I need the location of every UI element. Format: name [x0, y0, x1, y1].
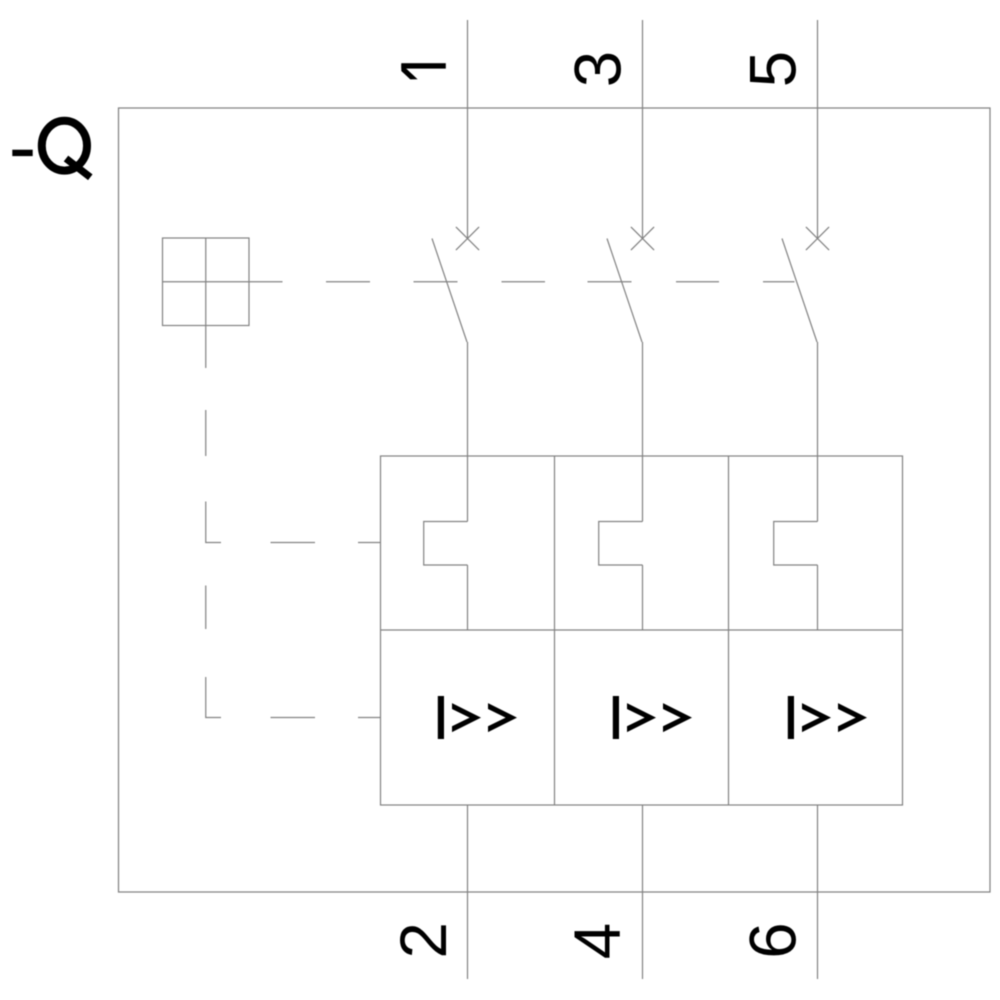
svg-text:4: 4: [561, 923, 634, 959]
svg-text:3: 3: [562, 51, 635, 87]
svg-text:6: 6: [737, 922, 810, 958]
svg-text:5: 5: [737, 51, 810, 87]
svg-text:2: 2: [387, 922, 460, 958]
